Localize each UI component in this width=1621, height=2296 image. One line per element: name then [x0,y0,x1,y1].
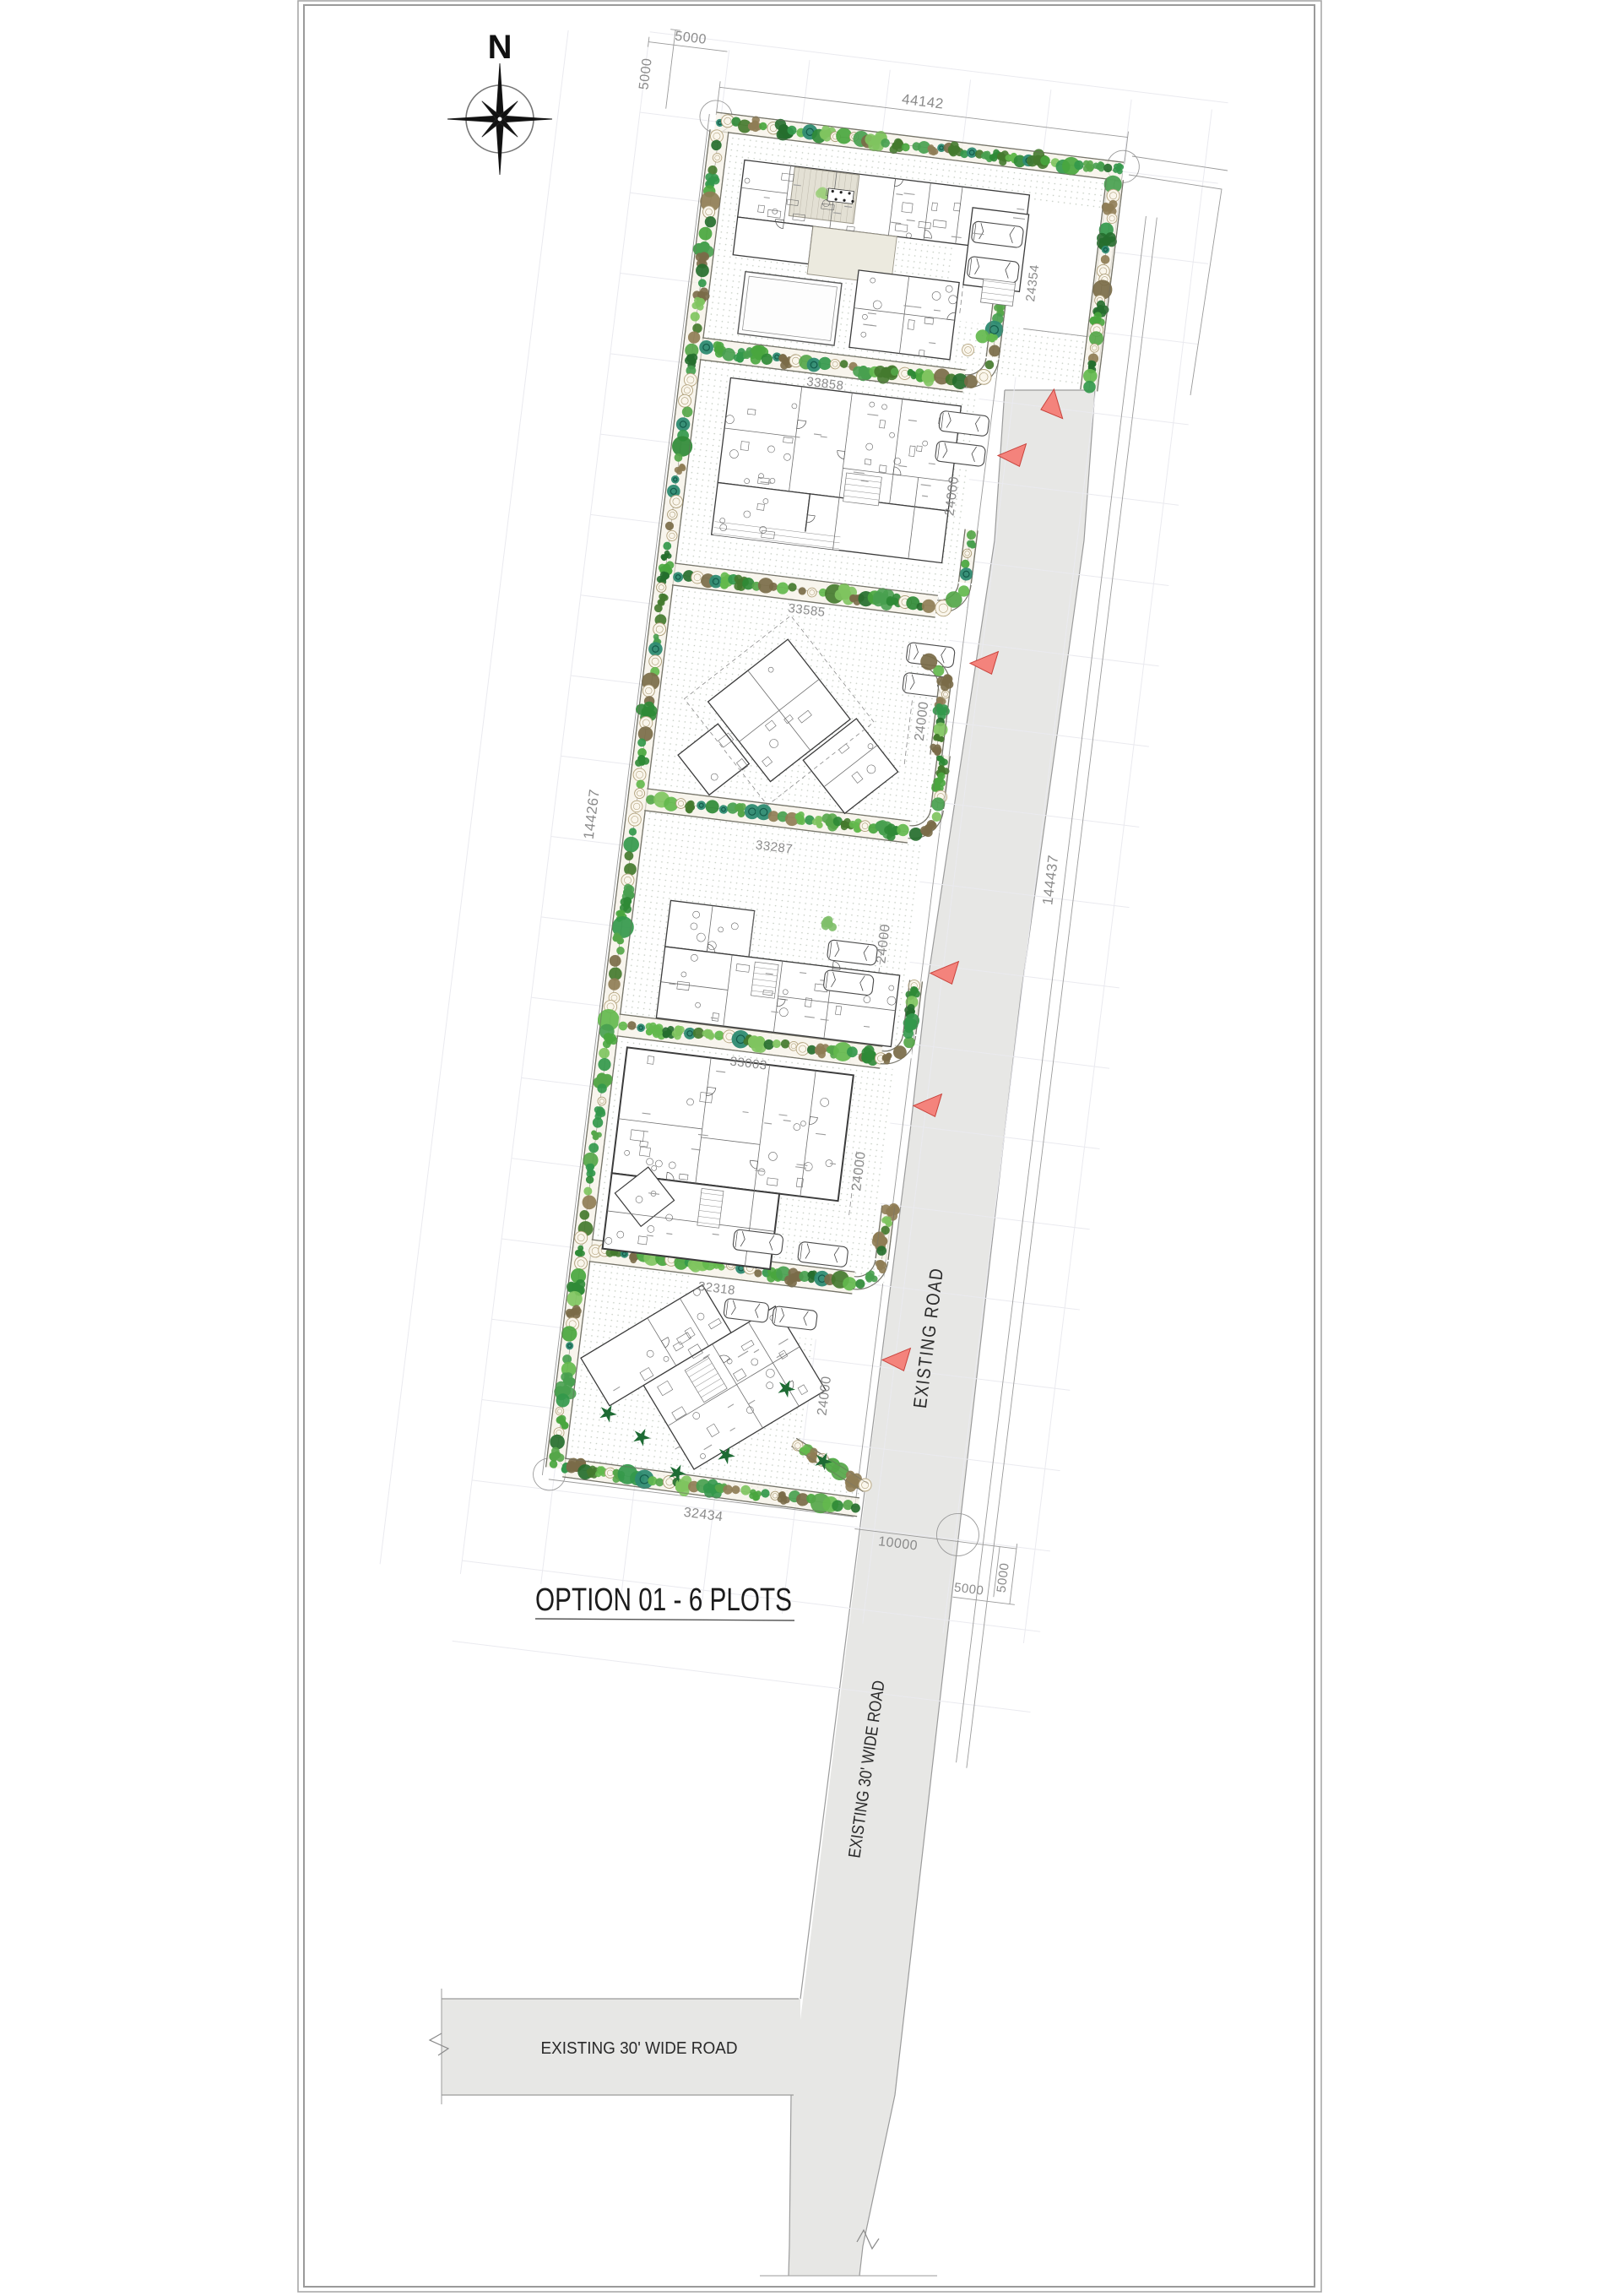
svg-text:EXISTING 30' WIDE ROAD: EXISTING 30' WIDE ROAD [541,2039,738,2058]
svg-text:N: N [488,29,512,66]
svg-text:OPTION 01 - 6 PLOTS: OPTION 01 - 6 PLOTS [535,1582,792,1618]
